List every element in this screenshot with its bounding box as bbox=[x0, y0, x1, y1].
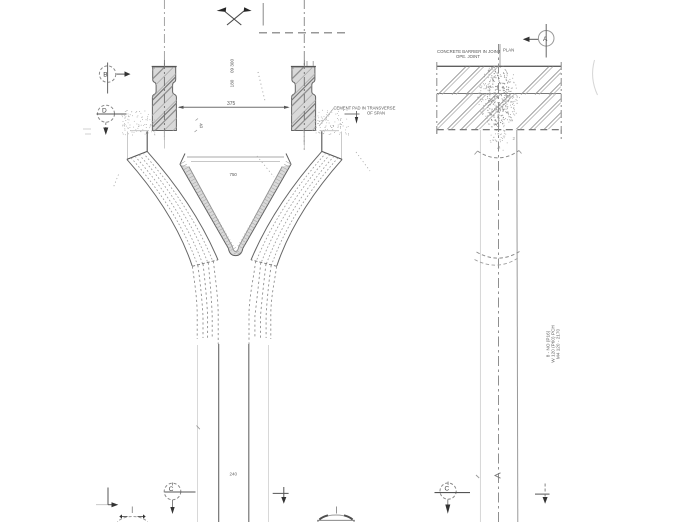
svg-text:B: B bbox=[103, 72, 107, 79]
svg-text:OF SPAN: OF SPAN bbox=[367, 111, 385, 116]
svg-text:PLAN: PLAN bbox=[503, 48, 514, 53]
svg-text:40: 40 bbox=[198, 123, 204, 129]
svg-text:A: A bbox=[543, 36, 548, 43]
svg-text:C: C bbox=[445, 486, 450, 493]
svg-text:D: D bbox=[102, 107, 107, 114]
svg-text:180: 180 bbox=[230, 79, 235, 87]
svg-text:M4 120 - 2170: M4 120 - 2170 bbox=[556, 328, 561, 359]
svg-text:2: 2 bbox=[513, 136, 516, 141]
svg-text:240: 240 bbox=[230, 472, 238, 477]
svg-text:CEMENT PAD IN TRANSVERSE: CEMENT PAD IN TRANSVERSE bbox=[334, 106, 396, 111]
svg-text:750: 750 bbox=[230, 172, 238, 177]
svg-text:09 300: 09 300 bbox=[230, 59, 235, 73]
svg-text:OPE. JOINT: OPE. JOINT bbox=[456, 54, 480, 59]
svg-text:375: 375 bbox=[227, 101, 236, 107]
